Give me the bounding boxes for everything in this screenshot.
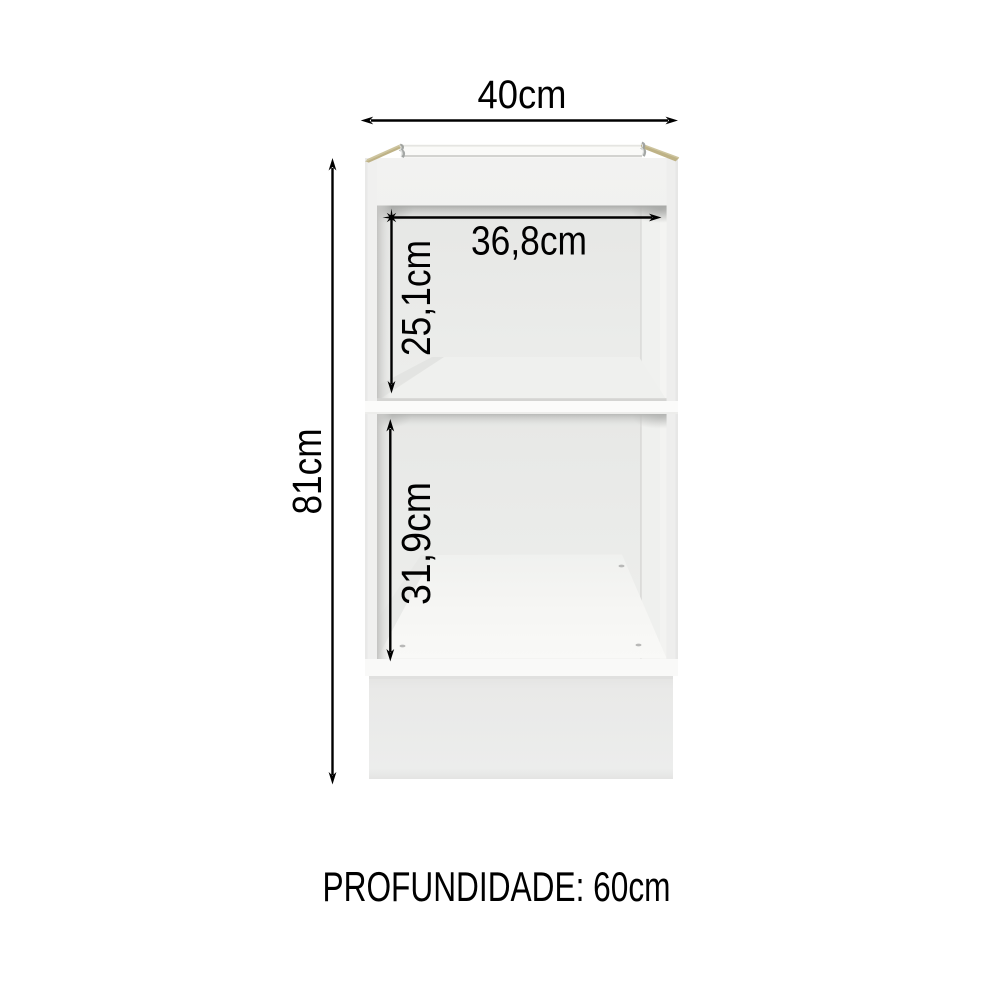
svg-text:31,9cm: 31,9cm	[393, 482, 439, 605]
svg-text:40cm: 40cm	[478, 73, 567, 117]
svg-text:81cm: 81cm	[284, 429, 330, 515]
svg-text:36,8cm: 36,8cm	[471, 218, 587, 264]
svg-text:PROFUNDIDADE: 60cm: PROFUNDIDADE: 60cm	[323, 863, 671, 910]
svg-text:25,1cm: 25,1cm	[393, 240, 439, 356]
